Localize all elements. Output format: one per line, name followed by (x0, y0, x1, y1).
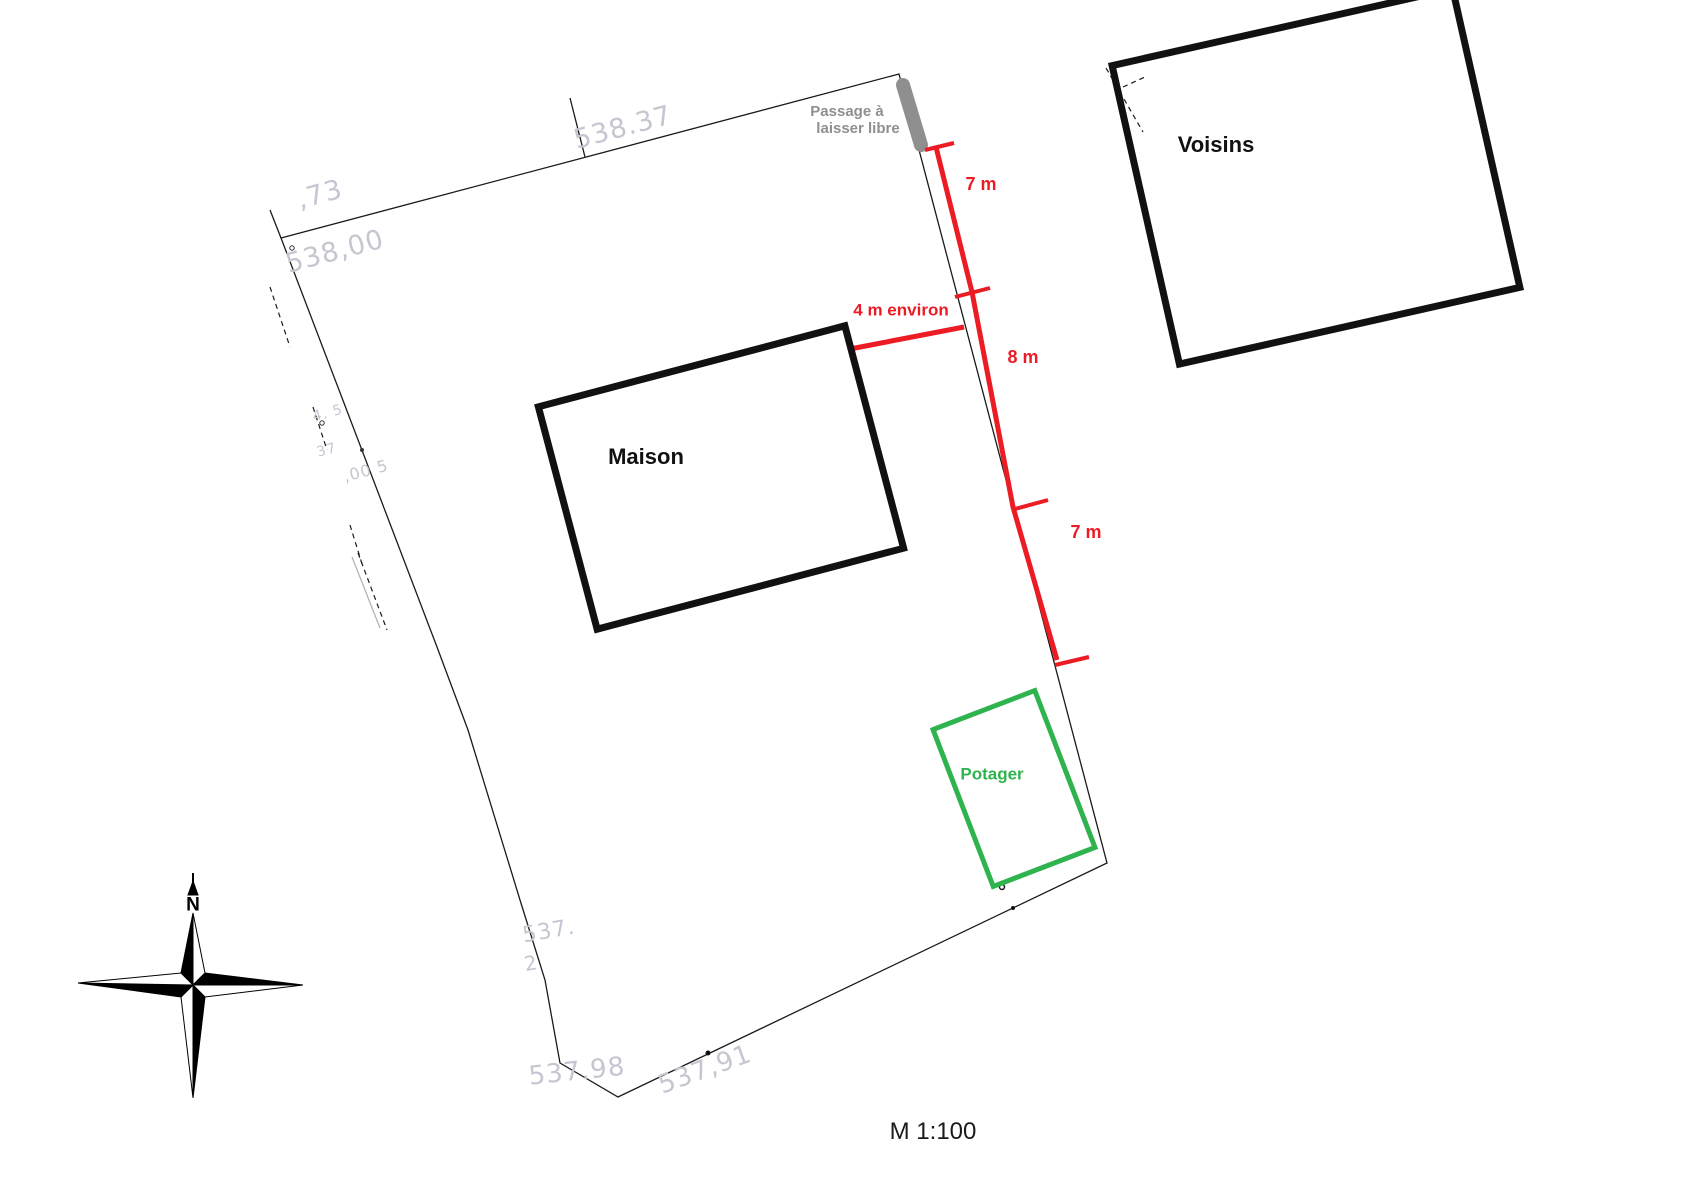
dimension-tick-4 (1055, 657, 1089, 665)
maison-label: Maison (608, 445, 684, 469)
dimension-label-house-setback: 4 m environ (853, 302, 948, 321)
voisins-label: Voisins (1178, 133, 1255, 157)
dimension-chain (936, 147, 1057, 660)
passage-label-line1: Passage à (810, 104, 883, 121)
dimension-label-top: 7 m (965, 175, 996, 195)
gray-slope-line (352, 557, 380, 628)
site-plan: Maison Voisins Potager Passage à laisser… (0, 0, 1684, 1191)
house-setback-line (850, 327, 964, 349)
potager-label: Potager (960, 766, 1023, 785)
compass-north-label: N (186, 896, 200, 917)
dimension-label-middle: 8 m (1007, 348, 1038, 368)
scale-label: M 1:100 (890, 1119, 977, 1145)
dimension-label-bottom: 7 m (1070, 523, 1101, 543)
passage-bar (903, 85, 921, 145)
survey-points (290, 246, 1015, 1056)
boundary-stub-west (270, 210, 281, 238)
dimension-lines (850, 143, 1089, 665)
dimension-tick-1 (925, 143, 954, 150)
passage-label-line2: laisser libre (816, 121, 899, 138)
compass-arrow-icon (188, 873, 198, 895)
dimension-tick-3 (1015, 500, 1048, 509)
